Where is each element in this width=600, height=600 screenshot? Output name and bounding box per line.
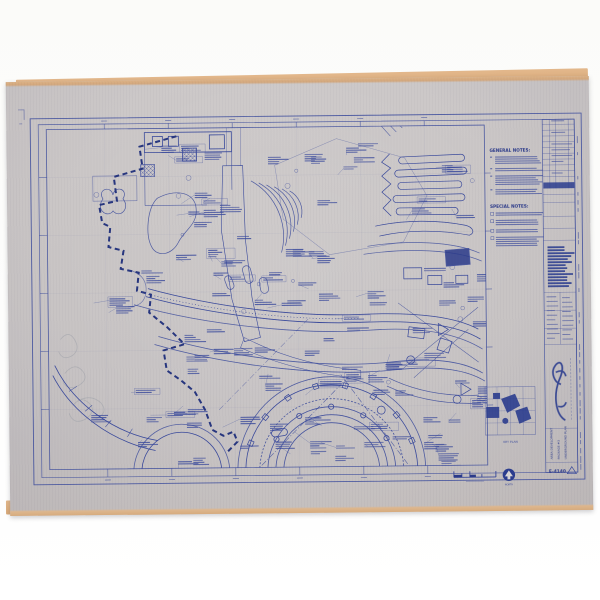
general-notes-title: GENERAL NOTES:	[489, 148, 530, 153]
general-notes: GENERAL NOTES:	[489, 147, 543, 194]
title-block: AREA DEVELOPMENT PACKAGE #3 UNDERGROUND …	[542, 119, 581, 475]
drawing-title: AREA DEVELOPMENT PACKAGE #3 UNDERGROUND …	[549, 426, 567, 459]
special-notes: SPECIAL NOTES:	[490, 203, 544, 246]
title-line-3: UNDERGROUND PLAN	[563, 426, 567, 459]
pencil-scribbles	[58, 334, 104, 421]
faint-gridlines	[46, 125, 488, 470]
north-label: NORTH	[505, 483, 514, 486]
site-plan	[50, 95, 501, 475]
title-line-1: AREA DEVELOPMENT	[549, 428, 553, 460]
special-notes-body	[491, 212, 544, 247]
blueprint-photo: GENERAL NOTES: SPECIAL NOTES:	[0, 0, 600, 600]
blueprint-sheet: GENERAL NOTES: SPECIAL NOTES:	[6, 76, 594, 516]
special-notes-title: SPECIAL NOTES:	[490, 204, 529, 209]
hatched-walk	[240, 336, 360, 379]
blueprint-drawing: GENERAL NOTES: SPECIAL NOTES:	[6, 76, 594, 516]
north-arrow-icon: NORTH	[503, 469, 516, 487]
revision-table	[542, 119, 575, 188]
circular-plaza	[237, 376, 426, 472]
title-line-2: PACKAGE #3	[557, 440, 561, 459]
revision-highlight-row	[543, 182, 574, 188]
key-plan-highlight	[486, 393, 531, 424]
sheet-number: E-4140	[549, 469, 566, 475]
boundary-line	[98, 136, 237, 453]
road-bottomleft	[53, 363, 289, 473]
key-plan-label: KEY PLAN	[503, 440, 518, 444]
rockwork-shapes	[100, 188, 197, 307]
leader-notes	[88, 141, 500, 474]
title-block-rules	[543, 194, 578, 462]
grid-ticks	[38, 117, 494, 481]
promenade-paths	[134, 285, 486, 467]
key-plan: KEY PLAN	[485, 387, 536, 445]
revision-triangle-icon	[567, 467, 576, 474]
sheet-number-box: E-4140	[549, 467, 577, 475]
utility-symbols	[94, 167, 477, 387]
firm-name-block	[547, 246, 574, 287]
company-logo	[553, 358, 571, 420]
general-notes-body	[490, 156, 543, 194]
